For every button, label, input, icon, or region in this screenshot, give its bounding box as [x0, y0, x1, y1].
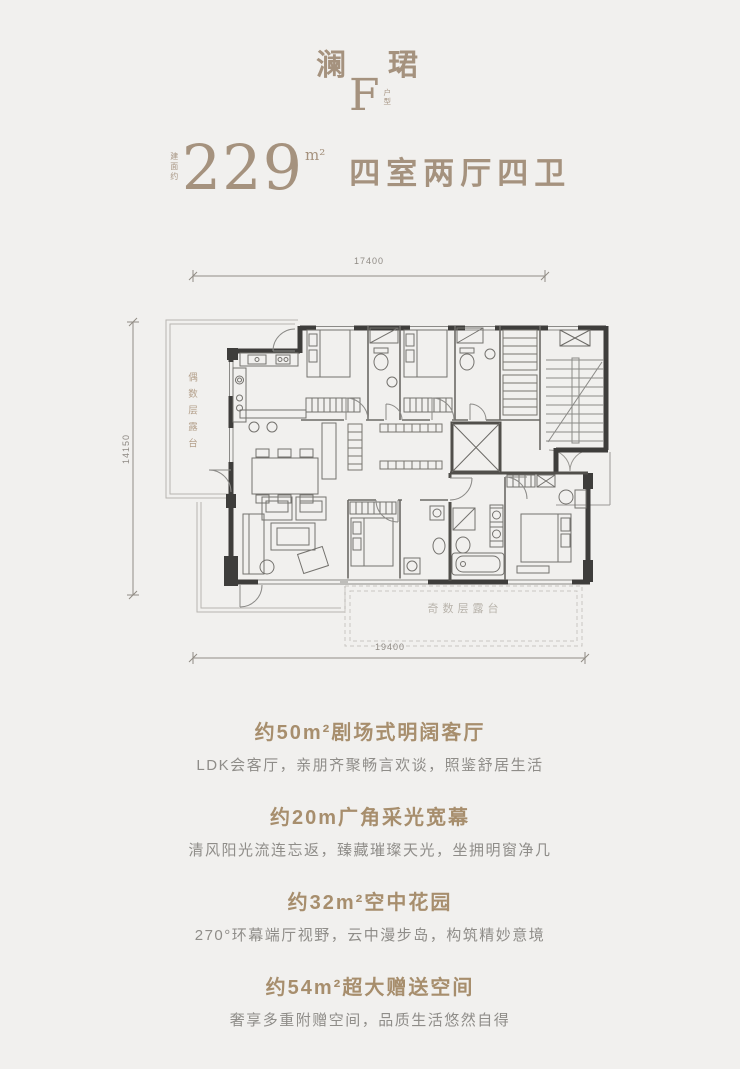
section-facade: 约20m广角采光宽幕 清风阳光流连忘返，臻藏璀璨天光，坐拥明窗净几	[0, 805, 740, 862]
living-furniture	[243, 497, 328, 574]
terrace-odd-dashed	[345, 586, 582, 646]
master-bedroom-furniture	[507, 475, 586, 573]
kitchen-furniture	[233, 353, 336, 479]
corridor-storage	[348, 424, 442, 470]
ensuite-fixtures	[452, 505, 504, 575]
section-living-room: 约50m²剧场式明阔客厅 LDK会客厅，亲朋齐聚畅言欢谈，照鉴舒居生活	[0, 720, 740, 777]
interior-walls	[450, 423, 588, 581]
duct-icon	[560, 330, 590, 346]
exterior-walls	[229, 326, 608, 583]
section-heading: 约54m²超大赠送空间	[0, 975, 740, 1001]
dining-furniture	[252, 449, 318, 503]
bath-c-fixtures	[404, 506, 445, 574]
dimension-left: 14150	[121, 419, 131, 479]
section-sky-garden: 约32m²空中花园 270°环幕端厅视野，云中漫步岛，构筑精妙意境	[0, 890, 740, 947]
section-heading: 约20m广角采光宽幕	[0, 805, 740, 831]
section-body: 清风阳光流连忘返，臻藏璀璨天光，坐拥明窗净几	[0, 840, 740, 862]
bedroom-c-furniture	[350, 502, 396, 566]
section-body: LDK会客厅，亲朋齐聚畅言欢谈，照鉴舒居生活	[0, 755, 740, 777]
section-bonus-space: 约54m²超大赠送空间 奢享多重附赠空间，品质生活悠然自得	[0, 975, 740, 1032]
bedroom-a-furniture	[306, 330, 360, 412]
bedroom-b-furniture	[404, 330, 452, 412]
bath-a-fixtures	[370, 328, 398, 387]
section-body: 270°环幕端厅视野，云中漫步岛，构筑精妙意境	[0, 925, 740, 947]
section-heading: 约32m²空中花园	[0, 890, 740, 916]
brochure-page: 澜 珺 F 户 型 建面约 229 m² 四室两厅四卫	[0, 0, 740, 1069]
selling-points: 约50m²剧场式明阔客厅 LDK会客厅，亲朋齐聚畅言欢谈，照鉴舒居生活 约20m…	[0, 720, 740, 1060]
partitions	[301, 326, 540, 583]
dimension-bottom: 19400	[340, 642, 440, 652]
stairs	[546, 358, 604, 443]
dimension-top: 17400	[319, 256, 419, 266]
elevator-icon	[452, 423, 500, 472]
bath-b-fixtures	[457, 328, 495, 370]
closet-hatch	[503, 330, 537, 415]
floorplan-drawing	[118, 248, 638, 700]
section-body: 奢享多重附赠空间，品质生活悠然自得	[0, 1010, 740, 1032]
terrace-odd-label: 奇数层露台	[400, 600, 530, 616]
section-heading: 约50m²剧场式明阔客厅	[0, 720, 740, 746]
terrace-even-label: 偶数层露台	[184, 372, 198, 455]
